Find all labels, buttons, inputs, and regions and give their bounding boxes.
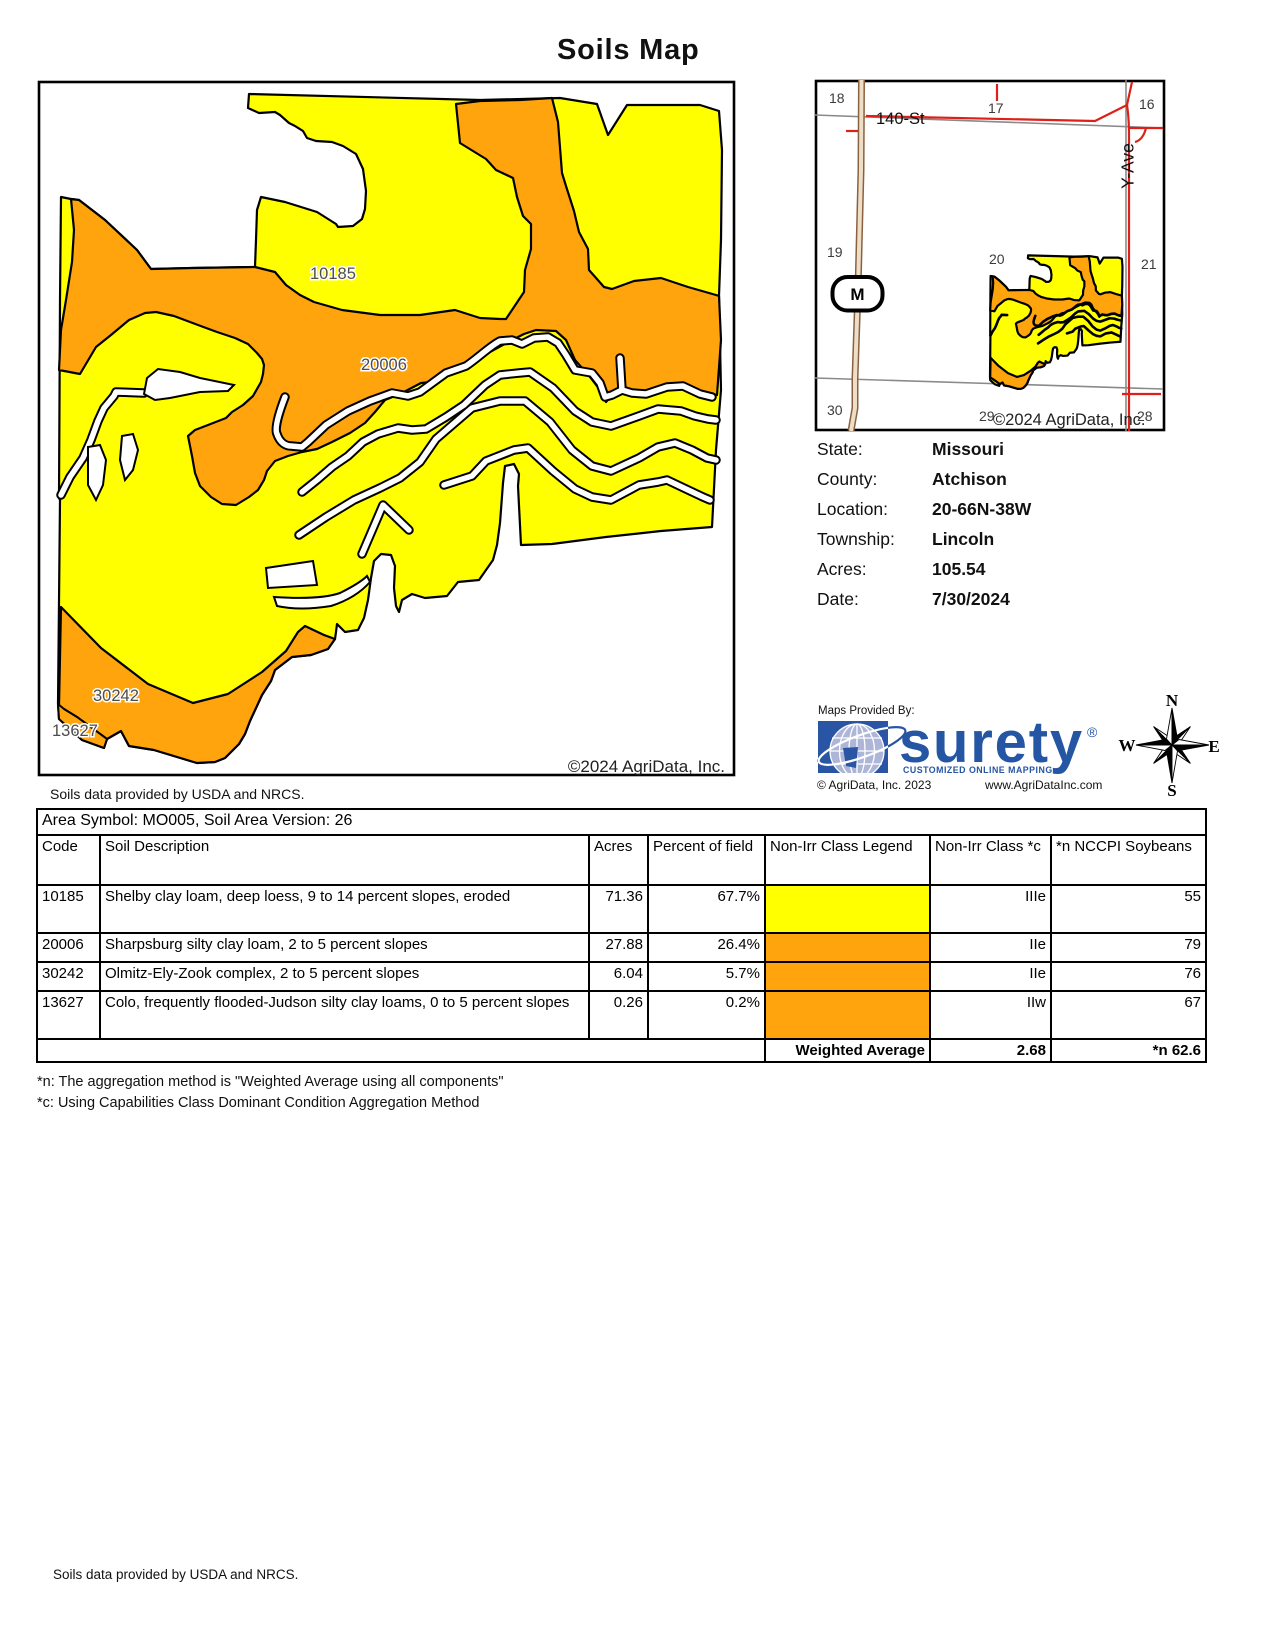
svg-text:S: S [1167,781,1176,800]
svg-text:W: W [1119,736,1136,755]
svg-text:N: N [1166,691,1179,710]
svg-text:E: E [1208,737,1219,756]
